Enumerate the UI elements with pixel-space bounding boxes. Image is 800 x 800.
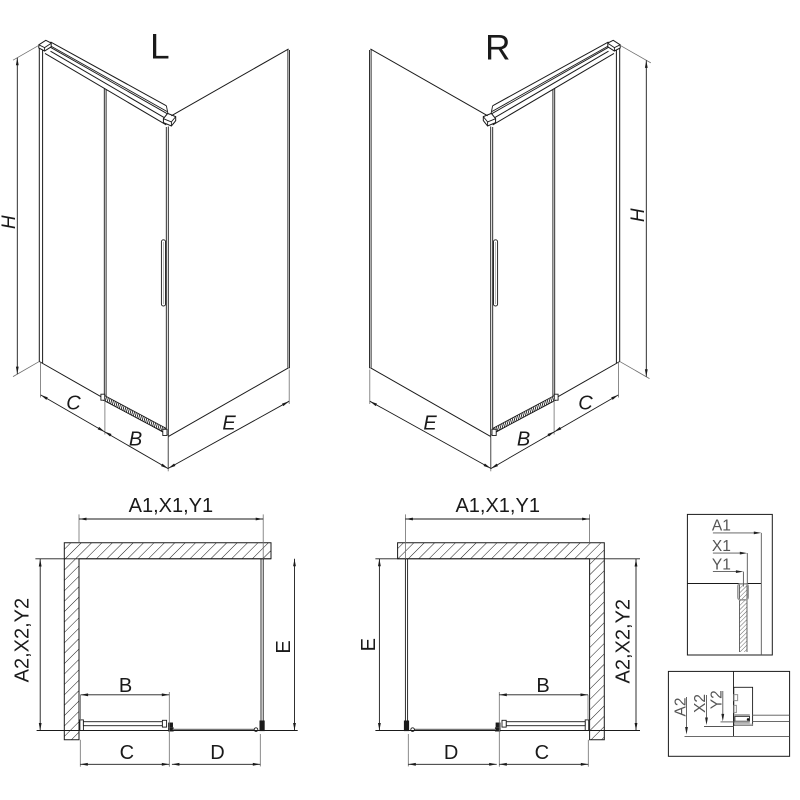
svg-text:L: L xyxy=(150,27,169,66)
svg-text:D: D xyxy=(210,742,224,764)
svg-text:A1: A1 xyxy=(712,518,731,535)
svg-text:B: B xyxy=(129,429,142,451)
svg-text:A2: A2 xyxy=(673,698,690,717)
svg-text:H: H xyxy=(628,208,649,222)
svg-text:D: D xyxy=(444,742,458,764)
svg-text:A2,X2,Y2: A2,X2,Y2 xyxy=(613,599,635,684)
svg-text:X1: X1 xyxy=(712,538,731,555)
svg-text:A1,X1,Y1: A1,X1,Y1 xyxy=(455,495,540,517)
svg-text:C: C xyxy=(120,742,134,764)
svg-text:C: C xyxy=(535,742,549,764)
svg-text:H: H xyxy=(0,215,20,229)
svg-text:E: E xyxy=(358,638,380,651)
svg-text:E: E xyxy=(273,640,295,653)
svg-text:A1,X1,Y1: A1,X1,Y1 xyxy=(129,495,214,517)
svg-text:E: E xyxy=(222,413,236,435)
svg-text:C: C xyxy=(66,393,81,415)
svg-text:B: B xyxy=(536,675,549,697)
svg-text:A2,X2,Y2: A2,X2,Y2 xyxy=(11,598,33,683)
svg-text:R: R xyxy=(485,28,510,67)
svg-text:Y1: Y1 xyxy=(712,556,731,573)
svg-text:B: B xyxy=(119,675,132,697)
svg-text:C: C xyxy=(578,393,593,415)
svg-text:E: E xyxy=(423,413,437,435)
svg-text:B: B xyxy=(517,429,530,451)
